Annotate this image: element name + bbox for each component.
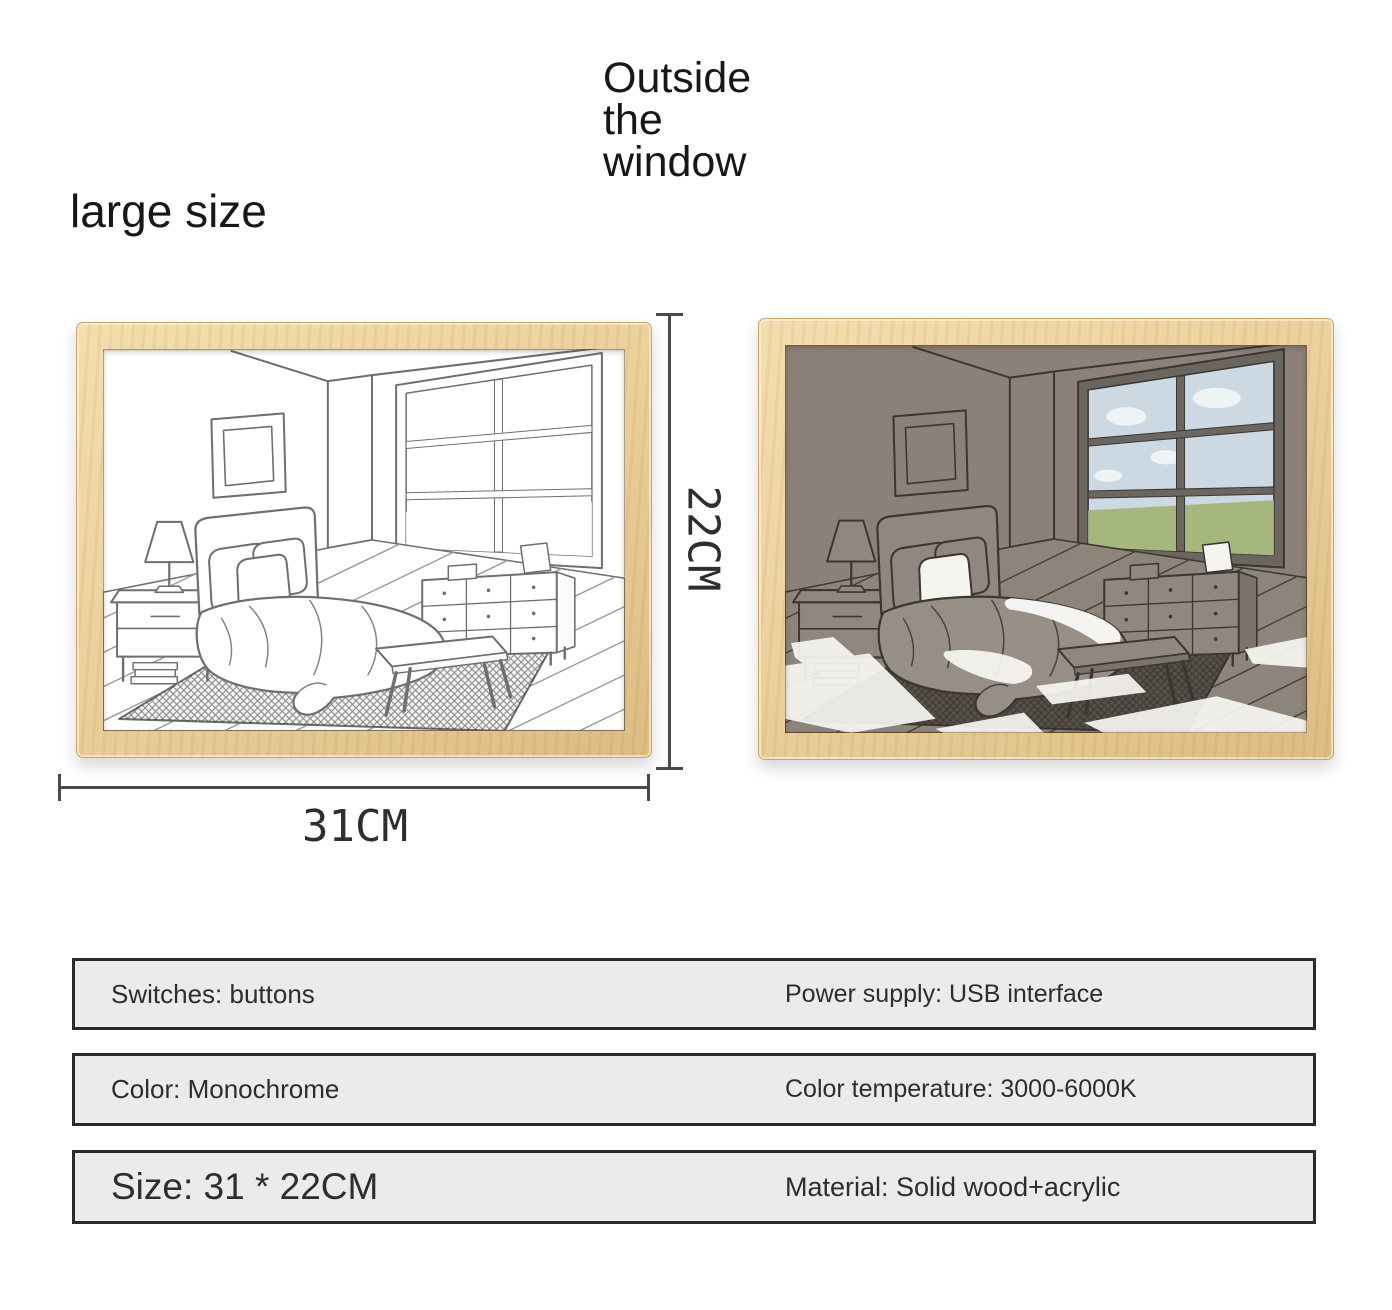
frame-opening: [785, 345, 1307, 733]
spec-size: Size: 31 * 22CM: [111, 1153, 378, 1221]
product-frame-light-on: [758, 318, 1334, 760]
product-frame-light-off: [76, 322, 652, 758]
spec-color-temp: Color temperature: 3000-6000K: [785, 1056, 1137, 1123]
spec-material: Material: Solid wood+acrylic: [785, 1153, 1120, 1221]
width-dimension-line: [58, 786, 650, 789]
spec-color: Color: Monochrome: [111, 1056, 339, 1123]
bedroom-artwork-illuminated-icon: [785, 345, 1307, 733]
height-dimension-cap-bottom: [656, 767, 683, 770]
spec-row-size-material: Size: 31 * 22CM Material: Solid wood+acr…: [72, 1150, 1316, 1224]
product-infographic: { "header": { "title": "Outside the wind…: [0, 0, 1392, 1310]
width-dimension-cap-right: [647, 774, 650, 801]
width-dimension-label: 31CM: [240, 801, 470, 852]
spec-power: Power supply: USB interface: [785, 961, 1103, 1027]
height-dimension-label: 22CM: [678, 454, 729, 624]
height-dimension-line: [668, 313, 671, 770]
bedroom-artwork-sketch-icon: [103, 349, 625, 731]
spec-row-color-temperature: Color: Monochrome Color temperature: 300…: [72, 1053, 1316, 1126]
frame-opening: [103, 349, 625, 731]
height-dimension-cap-top: [656, 313, 683, 316]
spec-switches: Switches: buttons: [111, 961, 315, 1027]
spec-row-switches-power: Switches: buttons Power supply: USB inte…: [72, 958, 1316, 1030]
width-dimension-cap-left: [58, 774, 61, 801]
size-label: large size: [70, 184, 267, 238]
page-title: Outside the window: [603, 57, 803, 183]
